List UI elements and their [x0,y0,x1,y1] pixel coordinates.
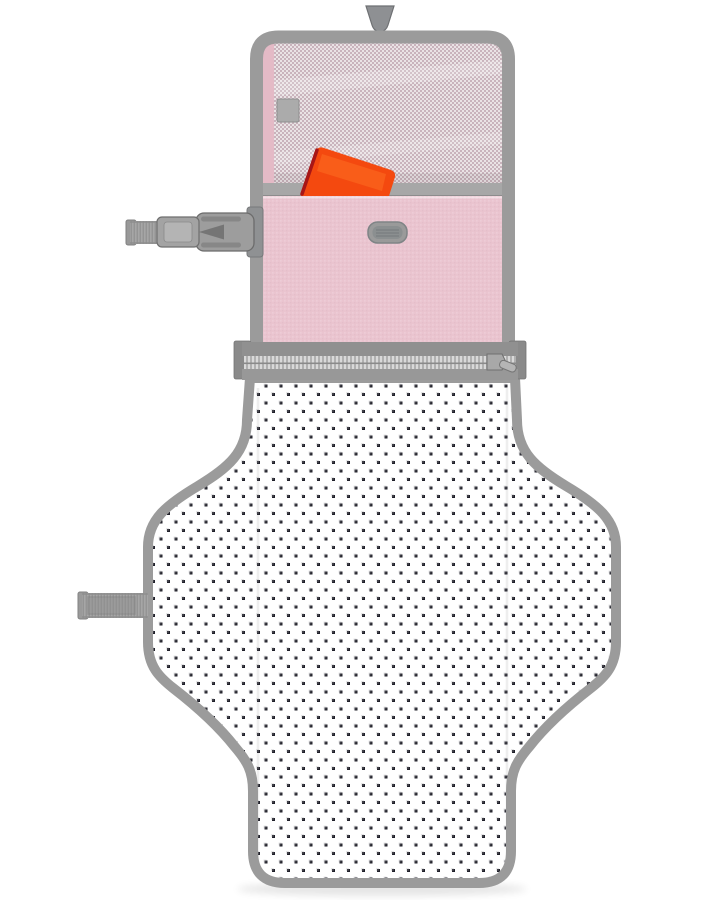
buckle-slot [201,243,241,248]
side-release-buckle [157,213,254,251]
zipper-tape-top [242,342,518,356]
strap-stitch-box [88,597,135,614]
mat-surface [148,378,616,883]
mesh-pocket-tab [277,99,299,122]
zipper-tape-bottom [242,369,518,380]
flap-heather-texture [256,196,509,346]
hanger-tab [366,6,394,32]
product-photo [0,0,720,900]
zipper [234,341,526,380]
changing-mat [148,378,616,883]
upper-pouch [256,37,509,348]
buckle-strap [126,207,263,257]
attachment-strap [78,592,148,619]
zipper-teeth-gap [244,363,516,365]
buckle-slot [201,217,241,222]
buckle-latch [164,222,192,242]
changing-pad-illustration [0,0,720,900]
brand-patch [368,222,407,243]
